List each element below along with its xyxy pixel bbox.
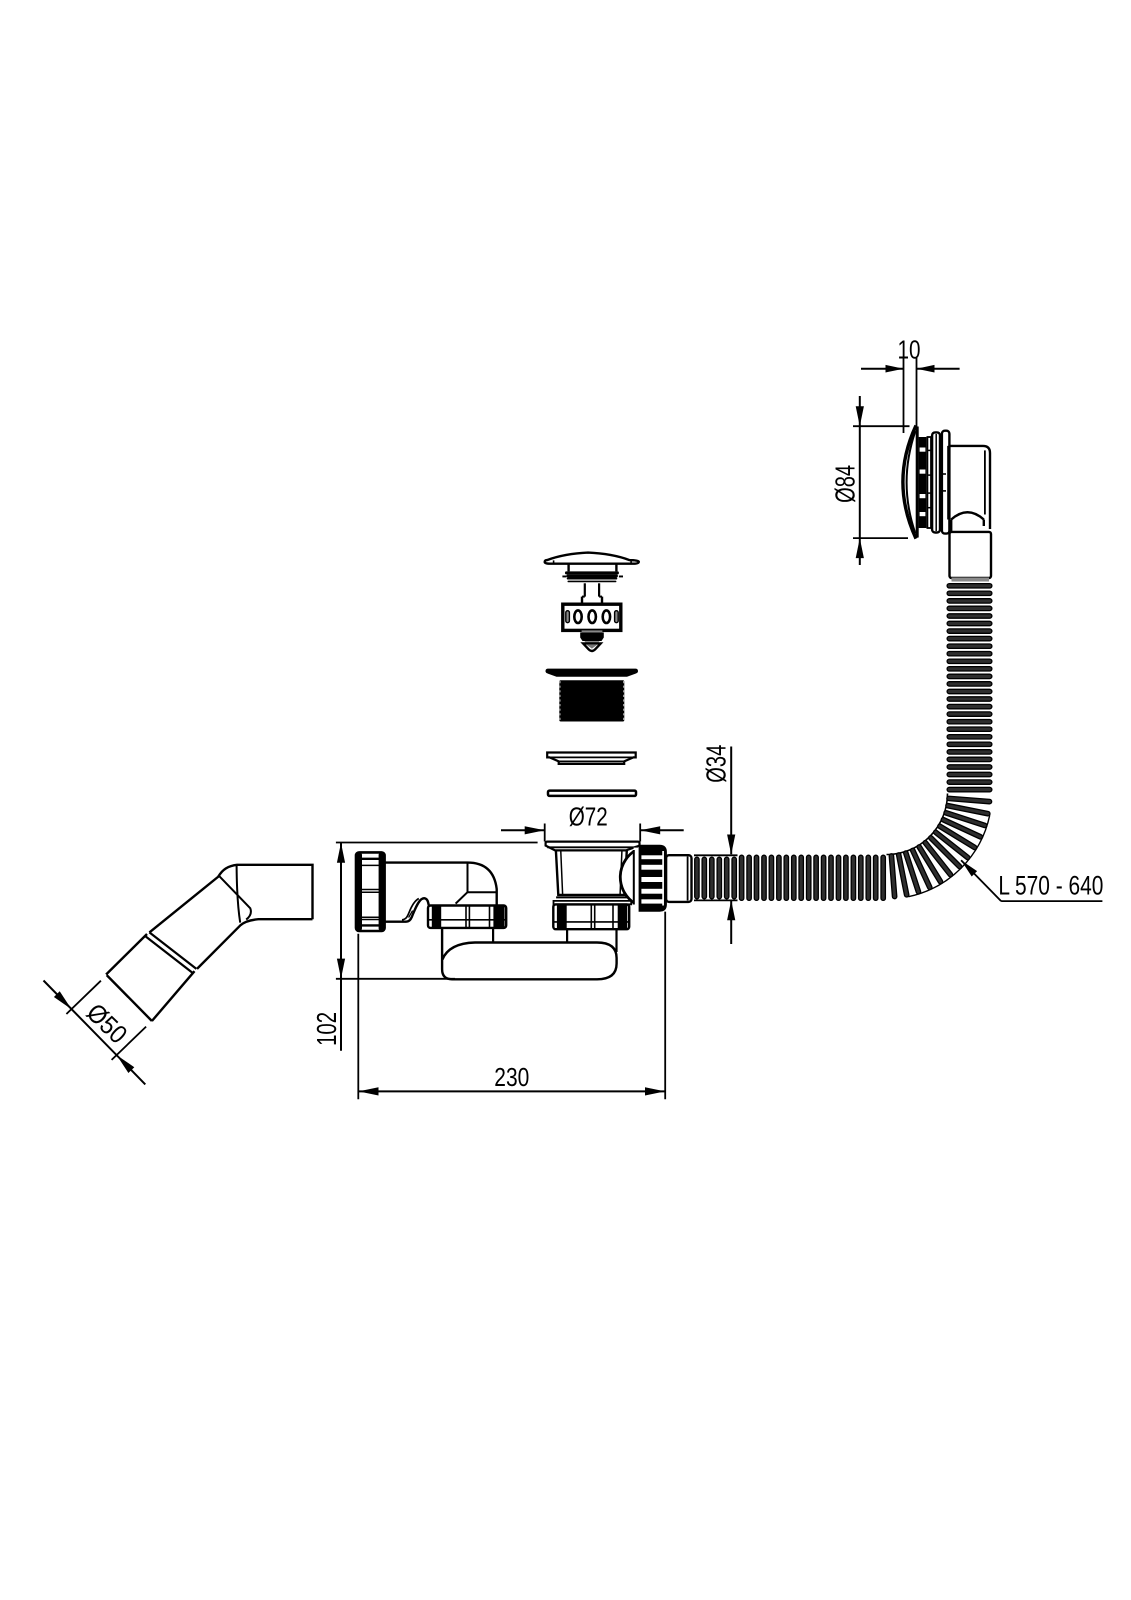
svg-text:230: 230: [494, 1062, 529, 1092]
svg-text:Ø34: Ø34: [701, 745, 732, 783]
svg-text:Ø50: Ø50: [81, 997, 133, 1049]
svg-text:Ø84: Ø84: [830, 465, 861, 503]
svg-text:102: 102: [311, 1012, 342, 1046]
svg-text:Ø72: Ø72: [569, 801, 608, 831]
svg-text:L 570 - 640: L 570 - 640: [998, 870, 1103, 900]
